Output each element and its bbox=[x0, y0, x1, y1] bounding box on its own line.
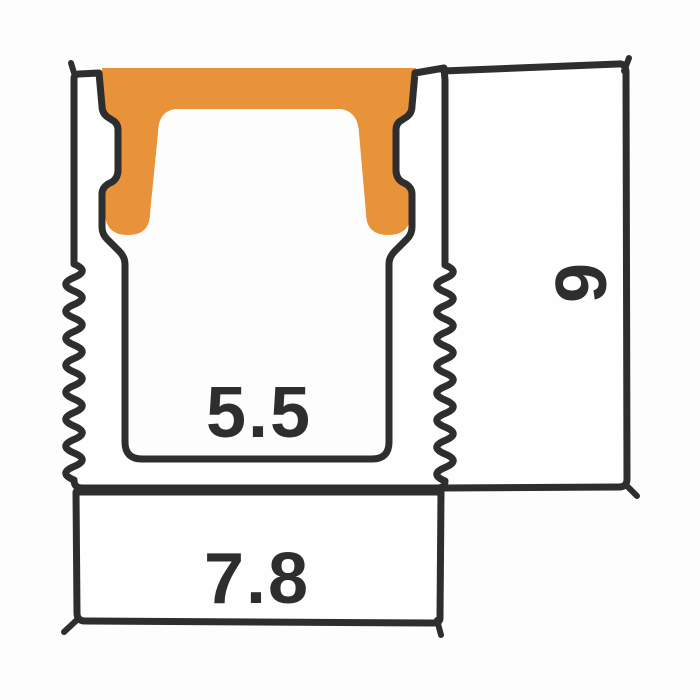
corner-flourish-plate-bottom-left bbox=[64, 618, 79, 632]
cover-clip-orange bbox=[102, 68, 416, 235]
label-inner-width: 5.5 bbox=[206, 373, 312, 453]
profile-cross-section-drawing: 5.5 7.8 9 bbox=[0, 0, 700, 700]
diagram-canvas: 5.5 7.8 9 bbox=[0, 0, 700, 700]
corner-flourish-profile-top-left bbox=[71, 63, 75, 76]
label-base-width: 7.8 bbox=[204, 539, 310, 619]
corner-flourish-panel-bottom-right bbox=[626, 485, 637, 496]
corner-flourish-plate-bottom-right bbox=[437, 620, 441, 635]
label-height: 9 bbox=[542, 261, 622, 303]
